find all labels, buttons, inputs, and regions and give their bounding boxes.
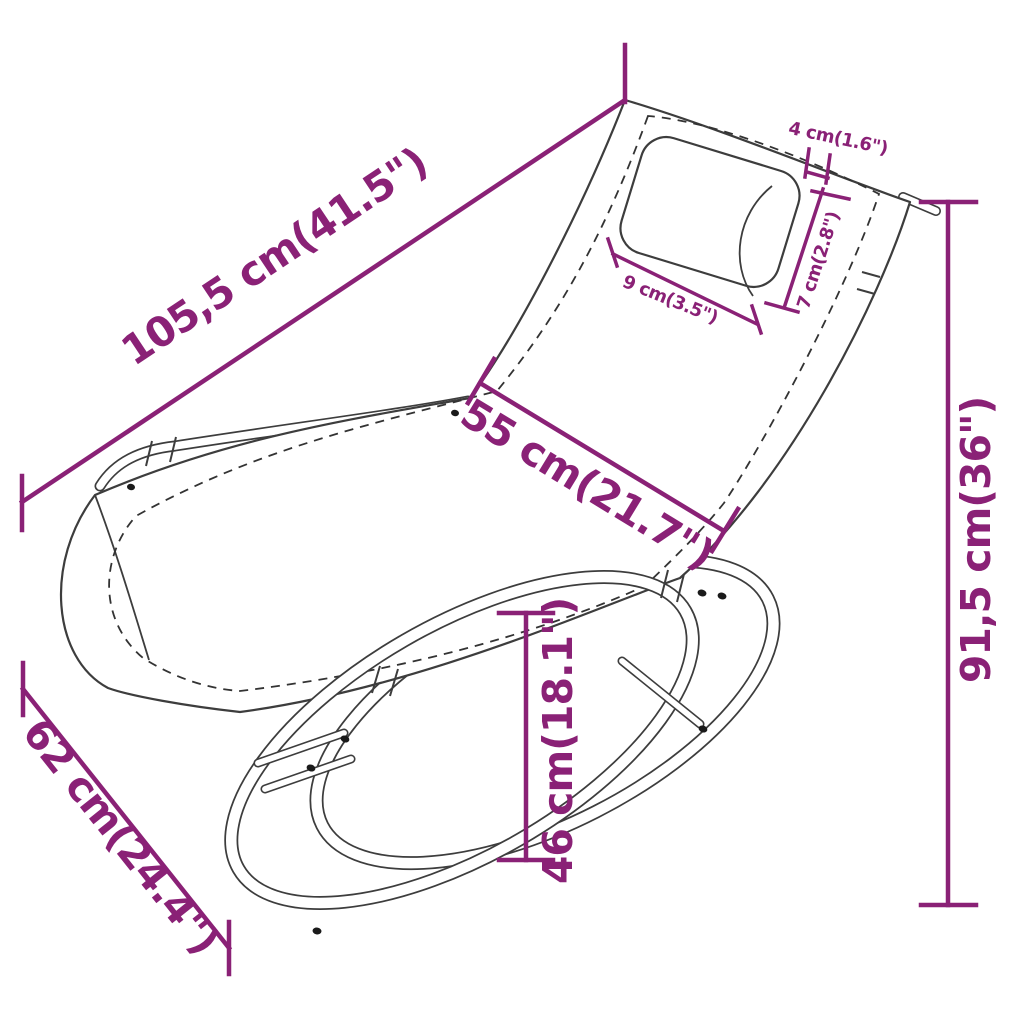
dim-label-seat-height: 46 cm(18.1") bbox=[534, 598, 582, 884]
dim-label-overall-height: 91,5 cm(36") bbox=[952, 397, 1000, 683]
diagram-canvas: 105,5 cm(41.5") 55 cm(21.7") 91,5 cm(36"… bbox=[0, 0, 1024, 1024]
dimension-diagram: 105,5 cm(41.5") 55 cm(21.7") 91,5 cm(36"… bbox=[0, 0, 1024, 1024]
dim-label-pillow-thickness: 4 cm(1.6") bbox=[787, 118, 890, 160]
dim-label-base-width: 62 cm(24.4") bbox=[13, 709, 229, 963]
